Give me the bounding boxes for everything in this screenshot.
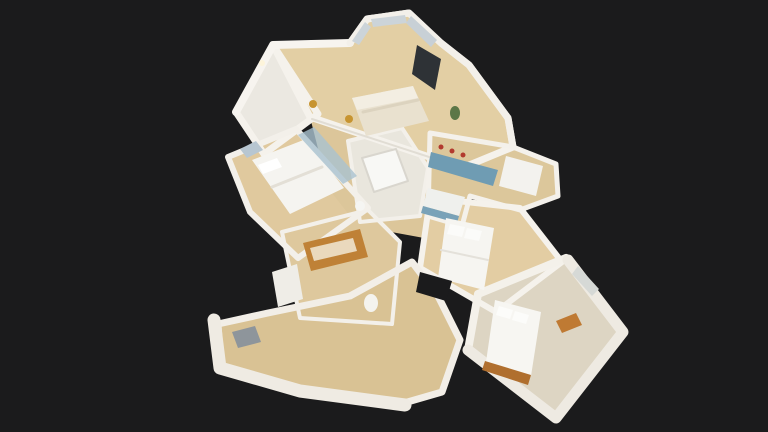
toilet xyxy=(364,294,378,312)
plant xyxy=(450,106,460,120)
stool-gold-1 xyxy=(309,100,317,108)
dollhouse-viewport[interactable]: 3D Dollhouse Floor Plan View xyxy=(0,0,768,432)
ceiling-spotlight xyxy=(259,60,265,66)
bed-middle xyxy=(438,218,494,290)
bathroom-sink xyxy=(355,201,365,211)
kitchen-red-item-1 xyxy=(439,145,444,150)
kitchen-red-item-2 xyxy=(450,149,455,154)
dollhouse-scene xyxy=(0,0,768,432)
stool-gold-2 xyxy=(345,115,353,123)
kitchen-red-item-3 xyxy=(461,153,466,158)
